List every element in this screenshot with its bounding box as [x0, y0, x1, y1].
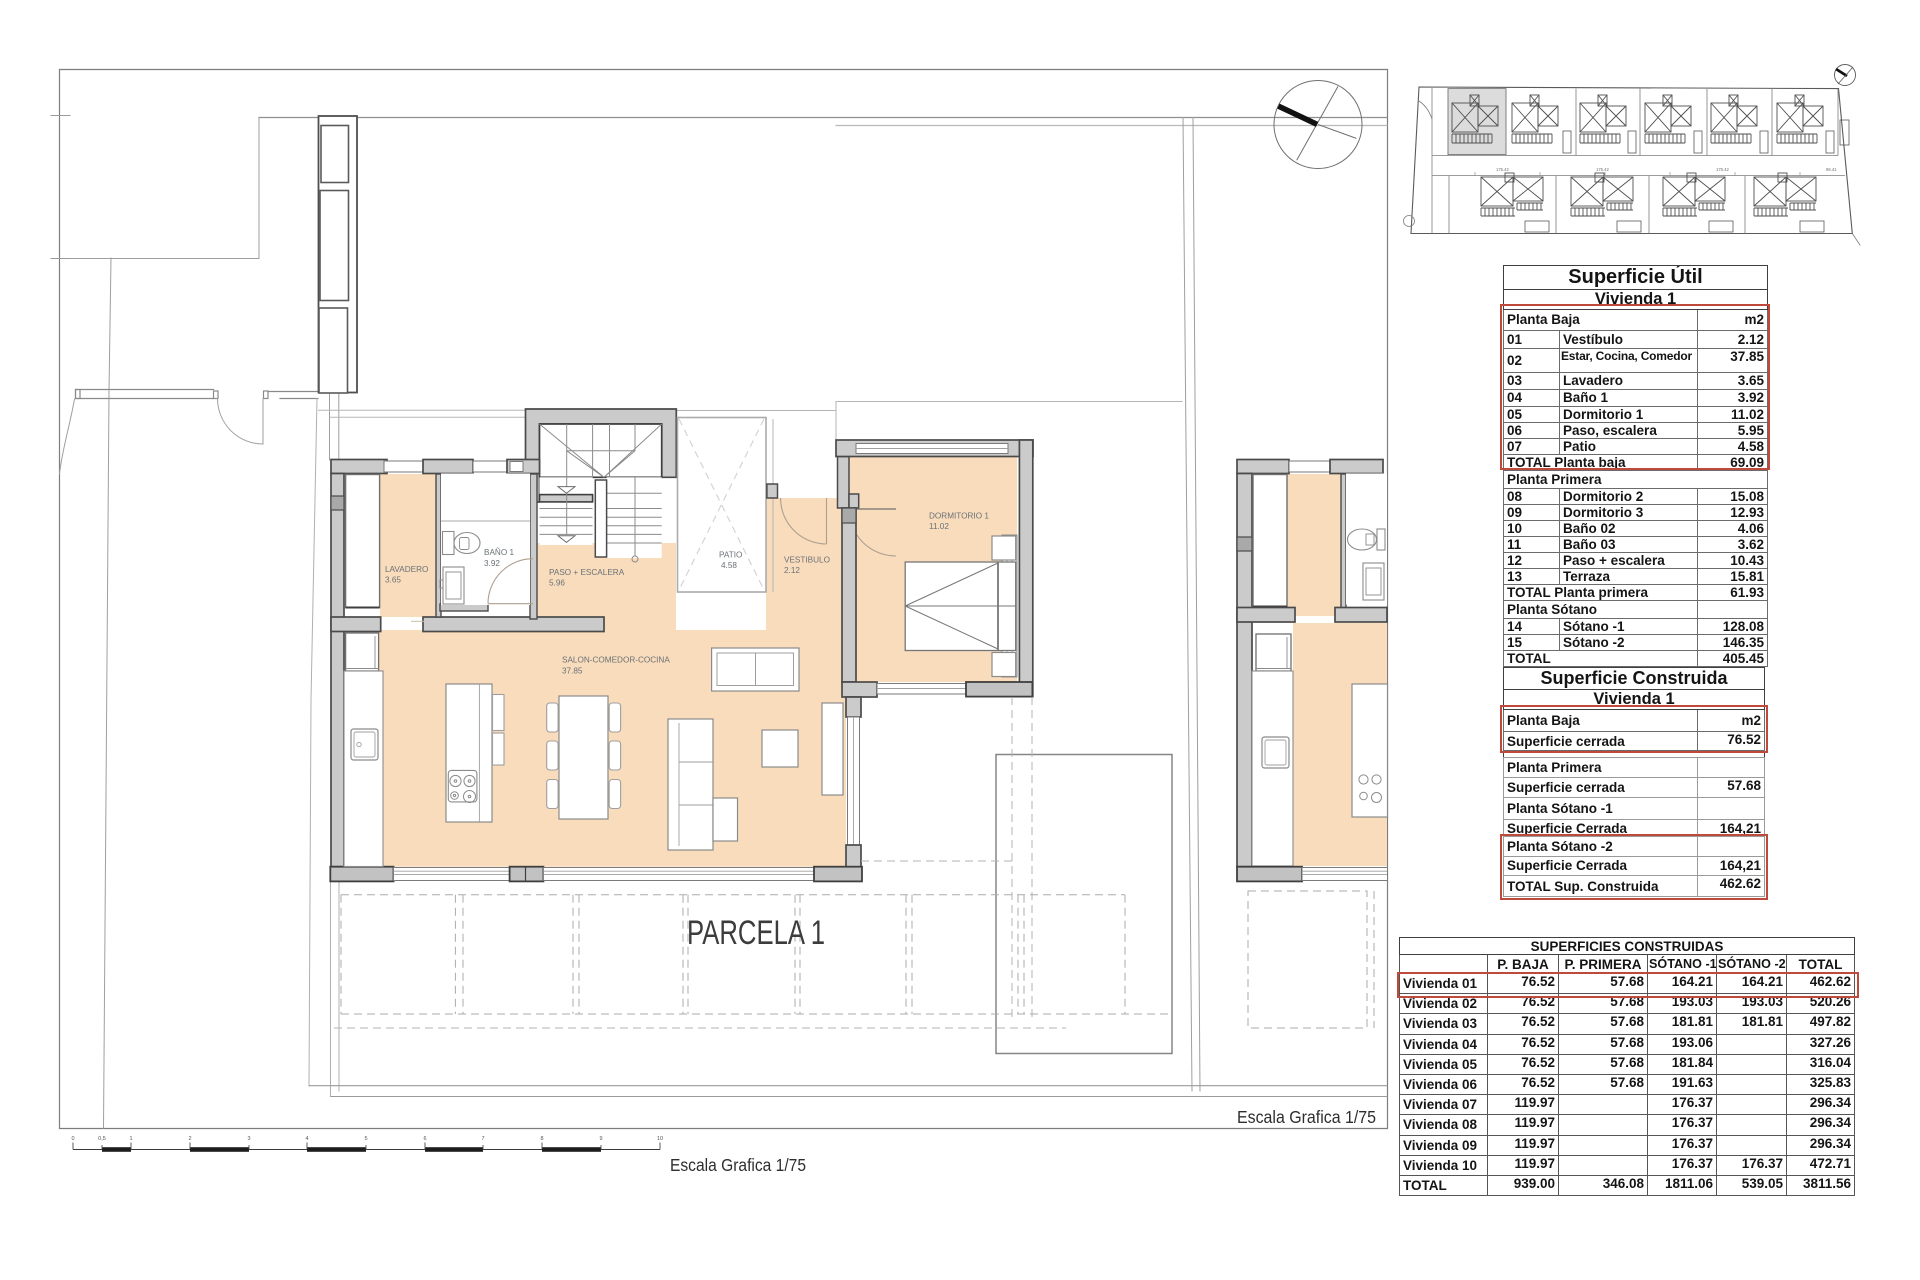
- svg-text:8: 8: [540, 1136, 543, 1142]
- svg-text:3.65: 3.65: [385, 576, 401, 585]
- svg-text:96.41: 96.41: [1826, 167, 1837, 172]
- svg-text:175.42: 175.42: [1496, 167, 1509, 172]
- svg-text:175.42: 175.42: [1596, 167, 1609, 172]
- svg-text:5: 5: [364, 1136, 367, 1142]
- svg-text:DORMITORIO 1: DORMITORIO 1: [929, 512, 989, 521]
- svg-text:6: 6: [423, 1136, 426, 1142]
- svg-text:10: 10: [657, 1136, 663, 1142]
- svg-text:LAVADERO: LAVADERO: [385, 565, 428, 574]
- svg-text:3.92: 3.92: [484, 559, 500, 568]
- svg-text:2: 2: [188, 1136, 191, 1142]
- svg-text:PATIO: PATIO: [719, 551, 742, 560]
- svg-text:175.42: 175.42: [1716, 167, 1729, 172]
- svg-text:VESTIBULO: VESTIBULO: [784, 556, 830, 565]
- svg-text:2.12: 2.12: [784, 566, 800, 575]
- svg-text:11.02: 11.02: [929, 522, 949, 531]
- svg-text:SALON-COMEDOR-COCINA: SALON-COMEDOR-COCINA: [562, 656, 670, 665]
- svg-text:BAÑO 1: BAÑO 1: [484, 547, 514, 557]
- svg-text:9: 9: [599, 1136, 602, 1142]
- svg-text:3: 3: [247, 1136, 250, 1142]
- svg-text:PASO + ESCALERA: PASO + ESCALERA: [549, 568, 625, 577]
- svg-text:7: 7: [481, 1136, 484, 1142]
- svg-text:0,5: 0,5: [98, 1136, 106, 1142]
- svg-text:5.96: 5.96: [549, 579, 565, 588]
- svg-text:Escala Grafica 1/75: Escala Grafica 1/75: [670, 1155, 806, 1175]
- svg-text:Escala Grafica 1/75: Escala Grafica 1/75: [1237, 1107, 1376, 1127]
- svg-text:1: 1: [129, 1136, 132, 1142]
- svg-text:4: 4: [305, 1136, 308, 1142]
- svg-text:37.85: 37.85: [562, 667, 583, 676]
- svg-text:0: 0: [71, 1136, 74, 1142]
- svg-text:PARCELA 1: PARCELA 1: [687, 914, 825, 952]
- svg-text:4.58: 4.58: [721, 561, 737, 570]
